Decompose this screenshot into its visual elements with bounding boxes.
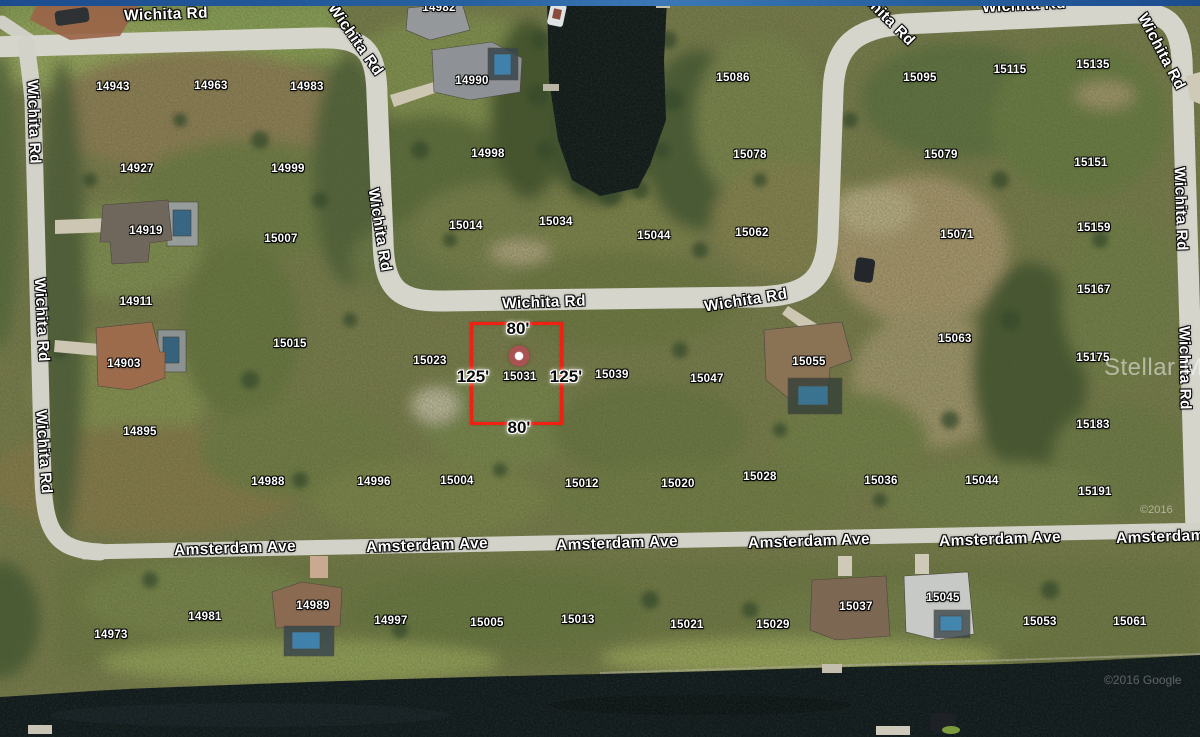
- satellite-map[interactable]: Wichita RdWichita RdWichita RdWichita Rd…: [0, 0, 1200, 737]
- terrain-imagery: [0, 0, 1200, 737]
- top-blue-bar: [0, 0, 1200, 6]
